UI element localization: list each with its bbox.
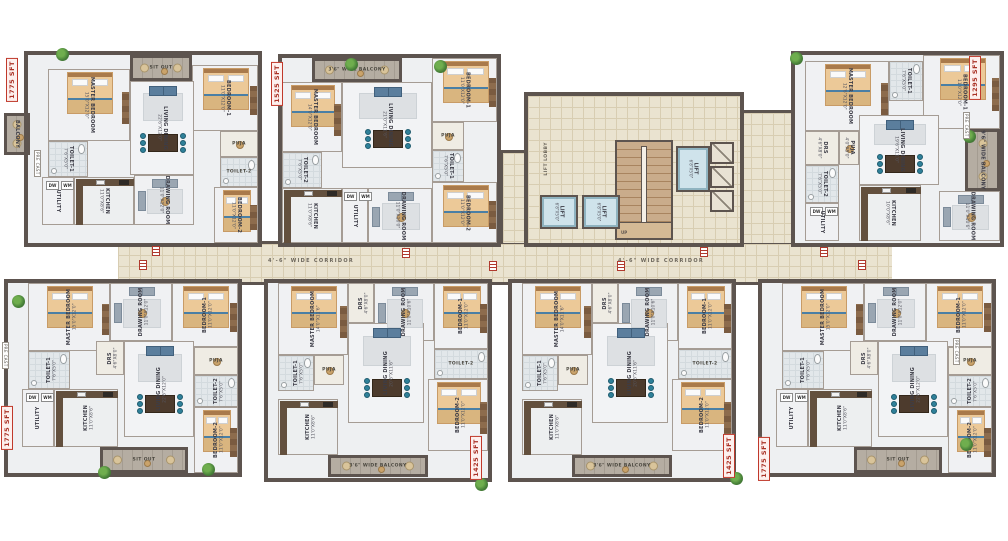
dining-chair bbox=[365, 143, 371, 149]
unit-area-badge: 1775 SFT bbox=[6, 58, 18, 102]
dining-chair bbox=[891, 394, 897, 400]
appliance-dw: DW bbox=[780, 393, 793, 402]
toilet-basin bbox=[785, 380, 791, 386]
drawing-room: DRAWING ROOM11'0"X12'0" bbox=[864, 283, 926, 341]
dining-chair bbox=[648, 385, 654, 391]
lift-label: LIFT6'8"X5'0" bbox=[688, 160, 699, 179]
room-dim: 7'6"X5'0" bbox=[807, 357, 813, 383]
unit-b1: MASTER BEDROOM15'0"X12'0"DRAWING ROOM11'… bbox=[8, 283, 238, 473]
wardrobe bbox=[480, 304, 487, 334]
service-duct bbox=[710, 190, 734, 212]
coffee-table bbox=[161, 197, 170, 206]
toilet-2: TOILET-27'6"X5'0" bbox=[282, 152, 322, 188]
unit-b4: MASTER BEDROOM15'0"X12'0"DRAWING ROOM11'… bbox=[762, 283, 992, 473]
bed-pillow bbox=[447, 293, 461, 300]
room-label-inner: KITCHEN11'0"X8'6" bbox=[98, 188, 110, 214]
room-label-inner: TOILET-17'6"X5'0" bbox=[442, 153, 454, 179]
room-label: PUJA bbox=[433, 134, 463, 139]
dining-chair bbox=[405, 143, 411, 149]
toilet-2: TOILET-27'6"X5'0" bbox=[805, 165, 839, 203]
bed-headboard bbox=[682, 383, 724, 387]
sofa bbox=[152, 179, 178, 188]
dining-chair bbox=[180, 140, 186, 146]
bedroom-2: BEDROOM-211'0"X12'0" bbox=[214, 187, 258, 243]
toilet-1: TOILET-17'6"X5'0" bbox=[28, 351, 70, 389]
toilet-basin bbox=[435, 173, 441, 179]
kitchen-sink bbox=[544, 402, 553, 407]
room-name: KITCHEN bbox=[305, 414, 311, 440]
sofa-cushion-line bbox=[896, 288, 897, 295]
dining-chair bbox=[608, 385, 614, 391]
corridor-label: 4'-6" WIDE CORRIDOR bbox=[618, 258, 704, 264]
room-label: KITCHEN11'0"X8'6" bbox=[98, 188, 110, 214]
bed bbox=[937, 286, 983, 328]
bed-blanket bbox=[292, 312, 336, 327]
kitchen-hob bbox=[567, 402, 577, 407]
room-dim: 11'0"X8'6" bbox=[312, 414, 318, 440]
coffee-table bbox=[138, 309, 147, 318]
sit-out: SIT OUT bbox=[854, 447, 942, 473]
room-label-inner: DRS4'6"X8'0" bbox=[816, 137, 828, 158]
room-name: TOILET-1 bbox=[293, 360, 299, 386]
bed-headboard bbox=[438, 383, 480, 387]
sofa bbox=[149, 86, 177, 96]
bed-pillow bbox=[560, 293, 577, 300]
balcony-table bbox=[17, 134, 24, 141]
bed-pillow bbox=[942, 293, 959, 300]
unit-t1: MASTER BEDROOM15'0"X12'0"SIT OUTBEDROOM-… bbox=[28, 55, 258, 243]
room-label: DRS4'6"X8'0" bbox=[351, 292, 371, 313]
living-dining: LIVING DINING21'0"X11'6" bbox=[342, 82, 432, 168]
unit-area-badge: 1425 SFT bbox=[723, 434, 735, 478]
bed bbox=[443, 185, 489, 227]
appliance-wm: WM bbox=[359, 192, 372, 201]
room-label: PUJA bbox=[195, 359, 237, 364]
lift-shaft: LIFT6'8"X5'0" bbox=[582, 195, 620, 229]
room-name: DRS bbox=[358, 292, 364, 313]
room-label-inner: TOILET-17'6"X5'0" bbox=[900, 68, 912, 94]
room-name: TOILET-1 bbox=[448, 153, 454, 179]
kitchen-counter bbox=[524, 408, 531, 455]
bedroom-2: BEDROOM-211'0"X12'0" bbox=[432, 182, 497, 243]
sofa bbox=[374, 87, 402, 97]
bed bbox=[223, 190, 251, 232]
sofa-cushion-line bbox=[971, 196, 972, 203]
kitchen-hob bbox=[119, 180, 129, 185]
toilet-wc bbox=[982, 378, 989, 388]
room-name: TOILET-2 bbox=[302, 157, 308, 183]
toilet-2: TOILET-2 bbox=[434, 349, 488, 379]
room-name: KITCHEN bbox=[837, 405, 843, 431]
rug bbox=[892, 354, 937, 383]
bed-pillow bbox=[447, 68, 464, 75]
utility: UTILITYDWWM bbox=[805, 203, 839, 241]
bed-headboard bbox=[536, 287, 580, 291]
toilet-wc bbox=[478, 352, 485, 362]
coffee-table bbox=[967, 213, 976, 222]
room-label: UTILITY bbox=[782, 407, 802, 430]
room-label: 3'6" WIDE BALCONY bbox=[331, 464, 425, 469]
wardrobe bbox=[102, 304, 109, 335]
room-label-inner: TOILET-27'6"X5'0" bbox=[816, 171, 828, 197]
kitchen-sink bbox=[304, 191, 313, 196]
room-name: UTILITY bbox=[55, 190, 61, 213]
dining-table bbox=[885, 155, 915, 173]
bed-headboard bbox=[444, 287, 480, 291]
bed-pillow bbox=[206, 417, 216, 424]
dining-chair bbox=[364, 378, 370, 384]
bed-headboard bbox=[292, 86, 334, 90]
room-label-inner: TOILET-17'6"X5'0" bbox=[62, 146, 74, 172]
bed-pillow bbox=[830, 71, 847, 78]
sofa-cushion-line bbox=[900, 121, 901, 129]
bed-headboard bbox=[444, 62, 488, 66]
master-bedroom: MASTER BEDROOM14'0"X11'6" bbox=[278, 283, 348, 355]
staircase: UP bbox=[615, 140, 673, 240]
room-label-inner: UTILITY bbox=[789, 407, 795, 430]
dining-table bbox=[899, 395, 929, 413]
bed bbox=[203, 68, 249, 110]
toilet-basin bbox=[681, 370, 687, 376]
master-bedroom: MASTER BEDROOM14'0"X11'6" bbox=[522, 283, 592, 355]
unit-b3: MASTER BEDROOM14'0"X11'6"DRS4'6"X8'0"DRA… bbox=[512, 283, 732, 478]
service-duct bbox=[710, 166, 734, 188]
toilet-2: TOILET-2 bbox=[678, 349, 732, 379]
3-6-wide-balcony: 3'6" WIDE BALCONY bbox=[572, 455, 672, 477]
bed-blanket bbox=[536, 312, 580, 327]
sofa bbox=[373, 328, 401, 338]
dining-chair bbox=[177, 394, 183, 400]
bed-pillow bbox=[52, 293, 69, 300]
bed-pillow bbox=[826, 293, 843, 300]
room-name: KITCHEN bbox=[83, 405, 89, 431]
bed-pillow bbox=[705, 389, 721, 396]
dining-chair bbox=[180, 147, 186, 153]
kitchen-hob bbox=[323, 402, 333, 407]
room-label: PUJA bbox=[221, 142, 257, 147]
bed-headboard bbox=[802, 287, 846, 291]
balcony-chair bbox=[978, 139, 987, 148]
bed-blanket bbox=[184, 312, 228, 327]
dining-chair bbox=[365, 129, 371, 135]
dining-chair bbox=[608, 378, 614, 384]
room-label: SIT OUT bbox=[103, 458, 185, 463]
room-label: TOILET-2 bbox=[221, 170, 257, 175]
bed-blanket bbox=[938, 312, 982, 327]
plant-icon bbox=[345, 58, 358, 71]
room-label-inner: KITCHEN11'0"X8'6" bbox=[83, 405, 95, 431]
room-label: KITCHEN10'0"X8'6" bbox=[884, 200, 896, 226]
sofa-cushion-line bbox=[387, 329, 388, 337]
room-label: 3'6" WIDE BALCONY bbox=[315, 68, 399, 73]
staircase-divider bbox=[641, 146, 647, 223]
dining-chair bbox=[608, 392, 614, 398]
bed bbox=[47, 286, 93, 328]
dining-chair bbox=[404, 378, 410, 384]
sofa bbox=[886, 120, 914, 130]
room-label-inner: KITCHEN11'0"X8'6" bbox=[549, 414, 561, 440]
room-label: TOILET-17'6"X5'0" bbox=[900, 68, 912, 94]
bed-headboard bbox=[444, 186, 488, 190]
living-dining: LIVING DINING20'6"X11'6" bbox=[592, 323, 668, 423]
room-label: KITCHEN11'0"X8'6" bbox=[298, 414, 318, 440]
bed-headboard bbox=[958, 411, 984, 415]
plant-icon bbox=[98, 466, 111, 479]
dining-chair bbox=[877, 161, 883, 167]
utility: UTILITYDWWM bbox=[776, 389, 808, 447]
bed-pillow bbox=[72, 293, 89, 300]
sit-out: SIT OUT bbox=[130, 55, 192, 81]
bed-pillow bbox=[228, 75, 245, 82]
kitchen: KITCHEN11'0"X8'6" bbox=[278, 399, 338, 455]
drs: DRS4'6"X8'0" bbox=[96, 341, 124, 375]
unit-area-badge: 1295 SFT bbox=[969, 56, 981, 100]
room-label: DRS4'6"X8'0" bbox=[816, 137, 828, 158]
lift-lobby-extension bbox=[740, 110, 795, 243]
bed bbox=[437, 382, 481, 424]
room-label: TOILET-27'6"X5'0" bbox=[206, 378, 226, 404]
rug bbox=[359, 93, 417, 119]
bed-headboard bbox=[68, 73, 112, 77]
bed-blanket bbox=[444, 87, 488, 102]
plant-icon bbox=[790, 52, 803, 65]
service-duct bbox=[710, 142, 734, 164]
drs: DRS4'6"X8'0" bbox=[592, 283, 618, 323]
utility: UTILITYDWWM bbox=[342, 188, 368, 243]
room-label: DRS4'6"X8'0" bbox=[595, 292, 615, 313]
room-dim: 7'6"X5'0" bbox=[62, 146, 68, 172]
room-name: TOILET-1 bbox=[46, 357, 52, 383]
appliance-wm: WM bbox=[825, 207, 838, 216]
wardrobe bbox=[984, 303, 991, 332]
room-label-inner: TOILET-17'6"X5'0" bbox=[800, 357, 812, 383]
room-label: TOILET-17'6"X5'0" bbox=[442, 153, 454, 179]
room-label-inner: UTILITY bbox=[35, 407, 41, 430]
unit-area-badge: 1525 SFT bbox=[271, 62, 283, 106]
kitchen-hob bbox=[906, 188, 916, 193]
plant-icon bbox=[56, 48, 69, 61]
unit-entry-marker bbox=[858, 260, 866, 270]
bed bbox=[443, 61, 489, 103]
bedroom-1: BEDROOM-111'0"X12'0" bbox=[192, 65, 258, 131]
wardrobe bbox=[856, 304, 863, 335]
lift-dim: 6'8"X5'0" bbox=[554, 203, 559, 222]
utility: UTILITYDWWM bbox=[42, 177, 74, 225]
toilet-basin bbox=[437, 370, 443, 376]
bed-pillow bbox=[295, 92, 311, 99]
room-label: TOILET-2 bbox=[435, 362, 487, 367]
living-dining: LIVING DINING19'6"X11'0" bbox=[859, 115, 939, 185]
bedroom-2: BEDROOM-211'0"X12'0" bbox=[194, 407, 238, 473]
toilet-2: TOILET-27'6"X5'0" bbox=[194, 375, 238, 407]
kitchen: KITCHEN11'0"X8'6" bbox=[282, 188, 342, 243]
kitchen-counter bbox=[56, 398, 63, 447]
bed-blanket bbox=[802, 312, 846, 327]
wardrobe bbox=[584, 306, 591, 338]
dining-chair bbox=[140, 133, 146, 139]
kitchen: KITCHEN11'0"X8'6" bbox=[808, 389, 872, 447]
room-name: TOILET-1 bbox=[800, 357, 806, 383]
kitchen-sink bbox=[77, 392, 86, 397]
wardrobe bbox=[489, 78, 496, 107]
wardrobe bbox=[250, 86, 257, 116]
bed-blanket bbox=[68, 98, 112, 113]
dining-chair bbox=[648, 392, 654, 398]
dining-chair bbox=[931, 408, 937, 414]
sofa-cushion-line bbox=[163, 87, 164, 95]
appliance-dw: DW bbox=[810, 207, 823, 216]
kitchen-sink bbox=[300, 402, 309, 407]
kitchen-counter bbox=[861, 194, 868, 241]
bed-pillow bbox=[463, 293, 477, 300]
unit-area-badge: 1775 SFT bbox=[1, 406, 13, 450]
room-name: KITCHEN bbox=[890, 200, 896, 226]
corridor: 4'-6" WIDE CORRIDOR4'-6" WIDE CORRIDOR bbox=[118, 241, 892, 285]
room-name: KITCHEN bbox=[312, 203, 318, 229]
coffee-table bbox=[401, 309, 410, 318]
wardrobe bbox=[340, 306, 347, 338]
sofa-cushion-line bbox=[142, 288, 143, 295]
unit-b2: MASTER BEDROOM14'0"X11'6"DRS4'6"X8'0"DRA… bbox=[268, 283, 488, 478]
toilet-wc bbox=[228, 378, 235, 388]
bed-blanket bbox=[826, 90, 870, 105]
puja: PUJA bbox=[194, 347, 238, 375]
room-label: PUJA bbox=[315, 368, 343, 373]
dining-chair bbox=[648, 378, 654, 384]
toilet-1: TOILET-17'6"X5'0" bbox=[48, 141, 88, 177]
bed bbox=[443, 286, 481, 328]
toilet-wc bbox=[248, 160, 255, 170]
kitchen-hob bbox=[103, 392, 113, 397]
bed-pillow bbox=[691, 293, 705, 300]
bed-pillow bbox=[208, 293, 225, 300]
room-name: UTILITY bbox=[789, 407, 795, 430]
rug bbox=[138, 354, 183, 383]
puja: PUJA bbox=[558, 355, 588, 385]
appliance-wm: WM bbox=[41, 393, 54, 402]
bed-pillow bbox=[685, 389, 701, 396]
dining-chair bbox=[365, 136, 371, 142]
wardrobe bbox=[724, 304, 731, 334]
room-label: KITCHEN11'0"X8'6" bbox=[830, 405, 850, 431]
sofa bbox=[114, 303, 122, 323]
toilet-wc bbox=[913, 64, 920, 74]
unit-area-badge: 1425 SFT bbox=[470, 436, 482, 480]
lift-label: LIFT6'8"X5'0" bbox=[596, 203, 607, 222]
room-dim: 7'6"X5'0" bbox=[816, 171, 822, 197]
bed-pillow bbox=[92, 79, 109, 86]
plant-icon bbox=[12, 295, 25, 308]
dining-chair bbox=[177, 408, 183, 414]
appliance-dw: DW bbox=[26, 393, 39, 402]
dining-chair bbox=[137, 401, 143, 407]
toilet-1: TOILET-17'6"X5'0" bbox=[522, 355, 558, 391]
bed-blanket bbox=[444, 211, 488, 226]
toilet-2: TOILET-27'6"X5'0" bbox=[948, 375, 992, 407]
puja: PUJA bbox=[432, 122, 464, 150]
sofa bbox=[129, 287, 155, 296]
room-name: DRS bbox=[107, 347, 113, 368]
unit-entry-marker bbox=[617, 261, 625, 271]
kitchen-counter bbox=[284, 197, 291, 243]
bed-headboard bbox=[204, 69, 248, 73]
room-dim: 7'6"X5'0" bbox=[442, 153, 448, 179]
kitchen-hob bbox=[327, 191, 337, 196]
toilet-basin bbox=[525, 382, 531, 388]
sofa bbox=[138, 191, 146, 211]
master-bedroom: MASTER BEDROOM15'0"X12'0" bbox=[48, 69, 130, 141]
lift-shaft: LIFT6'8"X5'0" bbox=[676, 146, 710, 192]
room-label-inner: DRS4'6"X8'0" bbox=[107, 347, 119, 368]
appliance-dw: DW bbox=[46, 181, 59, 190]
bed-blanket bbox=[688, 312, 724, 327]
room-name: TOILET-1 bbox=[537, 360, 543, 386]
room-label-inner: UTILITY bbox=[55, 190, 61, 213]
room-name: UTILITY bbox=[35, 407, 41, 430]
dining-chair bbox=[137, 408, 143, 414]
puja: PUJA bbox=[314, 355, 344, 385]
room-label: UTILITY bbox=[352, 204, 358, 227]
room-label: KITCHEN11'0"X8'6" bbox=[76, 405, 96, 431]
bed-pillow bbox=[461, 389, 477, 396]
master-bedroom: MASTER BEDROOM14'0"X12'0" bbox=[282, 82, 342, 152]
toilet-1: TOILET-17'6"X5'0" bbox=[889, 61, 923, 101]
room-dim: 11'0"X8'6" bbox=[98, 188, 104, 214]
bed-pillow bbox=[806, 293, 823, 300]
toilet-1: TOILET-17'6"X5'0" bbox=[432, 150, 464, 182]
rug bbox=[363, 336, 412, 366]
dining-table bbox=[145, 395, 175, 413]
unit-entry-marker bbox=[700, 247, 708, 257]
bed bbox=[535, 286, 581, 328]
dining-chair bbox=[404, 392, 410, 398]
room-label: KITCHEN11'0"X8'6" bbox=[542, 414, 562, 440]
sofa-cushion-line bbox=[165, 180, 166, 187]
room-label-inner: KITCHEN10'0"X8'6" bbox=[884, 200, 896, 226]
room-dim: 7'6"X5'0" bbox=[900, 68, 906, 94]
room-dim: 7'6"X5'0" bbox=[974, 378, 980, 404]
unit-area-badge: 1775 SFT bbox=[758, 437, 770, 481]
bed-pillow bbox=[188, 293, 205, 300]
precast-tag: PRE CAST bbox=[34, 150, 41, 177]
bed bbox=[67, 72, 113, 114]
room-name: DRS bbox=[861, 347, 867, 368]
room-label-inner: TOILET-27'6"X5'0" bbox=[213, 378, 225, 404]
plant-icon bbox=[434, 60, 447, 73]
toilet-2: TOILET-2 bbox=[220, 157, 258, 187]
lift-dim: 6'8"X5'0" bbox=[596, 203, 601, 222]
dining-table bbox=[372, 379, 402, 397]
bed-blanket bbox=[682, 408, 724, 423]
unit-t2: 3'6" WIDE BALCONYBEDROOM-111'0"X12'0"MAS… bbox=[282, 58, 497, 243]
room-name: DRS bbox=[602, 292, 608, 313]
bed-blanket bbox=[224, 216, 250, 231]
sofa-cushion-line bbox=[649, 288, 650, 295]
wardrobe bbox=[480, 402, 487, 434]
dining-chair bbox=[137, 394, 143, 400]
room-label-inner: DRS4'6"X8'0" bbox=[602, 292, 614, 313]
dining-chair bbox=[405, 129, 411, 135]
wardrobe bbox=[230, 303, 237, 332]
room-label-inner: DRS4'6"X8'0" bbox=[358, 292, 370, 313]
room-name: KITCHEN bbox=[549, 414, 555, 440]
dining-table bbox=[148, 134, 178, 152]
dining-chair bbox=[140, 147, 146, 153]
lift-shaft: LIFT6'8"X5'0" bbox=[540, 195, 578, 229]
room-dim: 4'6"X8'0" bbox=[609, 292, 615, 313]
room-dim: 11'0"X8'6" bbox=[90, 405, 96, 431]
bed-pillow bbox=[447, 192, 464, 199]
